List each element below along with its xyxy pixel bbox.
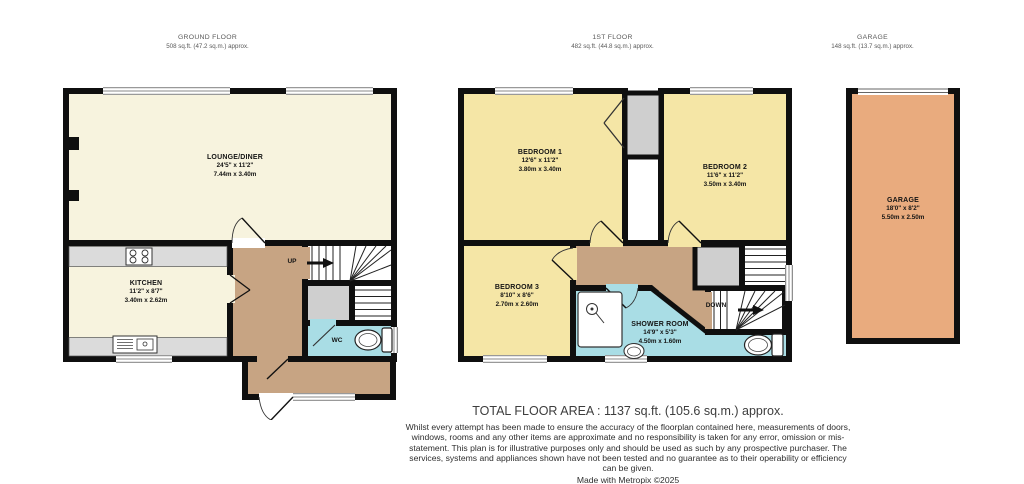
room-name: GARAGE — [844, 196, 962, 205]
floor-title: GROUND FLOOR — [110, 33, 305, 43]
room-name: BEDROOM 3 — [452, 283, 582, 292]
room-size-metric: 3.80m x 3.40m — [467, 166, 613, 175]
room-label-kitchen: KITCHEN 11'2" x 8'7" 3.40m x 2.62m — [76, 279, 216, 305]
room-size-metric: 3.50m x 3.40m — [652, 181, 798, 190]
floorplan-canvas: GROUND FLOOR 508 sq.ft. (47.2 sq.m.) app… — [0, 0, 1024, 484]
floor-area: 508 sq.ft. (47.2 sq.m.) approx. — [110, 43, 305, 52]
room-name: SHOWER ROOM — [585, 320, 735, 329]
ground-floor-drawing — [60, 85, 400, 420]
garage-header: GARAGE 148 sq.ft. (13.7 sq.m.) approx. — [775, 33, 970, 52]
garage-door — [858, 87, 948, 95]
room-size-metric: 7.44m x 3.40m — [155, 171, 315, 180]
landing-cupboard — [695, 245, 742, 288]
garage-plan: GARAGE 18'0" x 8'2" 5.50m x 2.50m — [844, 86, 962, 346]
floor-area: 148 sq.ft. (13.7 sq.m.) approx. — [775, 43, 970, 52]
room-name: BEDROOM 2 — [652, 163, 798, 172]
room-size-metric: 4.50m x 1.60m — [585, 338, 735, 347]
kitchen-sink-icon — [113, 336, 157, 353]
toilet-icon — [745, 334, 784, 356]
total-floor-area: TOTAL FLOOR AREA : 1137 sq.ft. (105.6 sq… — [360, 404, 896, 418]
disclaimer-text: Whilst every attempt has been made to en… — [402, 422, 854, 474]
chimney-nub — [66, 190, 79, 201]
floor-area: 482 sq.ft. (44.8 sq.m.) approx. — [515, 43, 710, 52]
ground-floor-plan: LOUNGE/DINER 24'5" x 11'2" 7.44m x 3.40m… — [60, 85, 400, 420]
stove-icon — [126, 248, 152, 265]
room-size-imperial: 11'2" x 8'7" — [76, 288, 216, 297]
floor-title: 1ST FLOOR — [515, 33, 710, 43]
room-name: KITCHEN — [76, 279, 216, 288]
bedroom-cupboard — [625, 93, 661, 157]
room-label-bedroom1: BEDROOM 1 12'6" x 11'2" 3.80m x 3.40m — [467, 148, 613, 174]
room-size-metric: 5.50m x 2.50m — [844, 214, 962, 223]
room-label-garage: GARAGE 18'0" x 8'2" 5.50m x 2.50m — [844, 196, 962, 222]
room-name: BEDROOM 1 — [467, 148, 613, 157]
room-name: LOUNGE/DINER — [155, 153, 315, 162]
floor-title: GARAGE — [775, 33, 970, 43]
room-label-bedroom2: BEDROOM 2 11'6" x 11'2" 3.50m x 3.40m — [652, 163, 798, 189]
room-size-imperial: 18'0" x 8'2" — [844, 205, 962, 214]
metropix-credit: Made with Metropix ©2025 — [360, 475, 896, 484]
ground-floor-header: GROUND FLOOR 508 sq.ft. (47.2 sq.m.) app… — [110, 33, 305, 52]
room-label-wc: WC — [312, 337, 362, 344]
chimney-nub — [66, 137, 79, 150]
first-floor-plan: BEDROOM 1 12'6" x 11'2" 3.80m x 3.40m BE… — [455, 85, 795, 375]
room-label-bedroom3: BEDROOM 3 8'10" x 8'6" 2.70m x 2.60m — [452, 283, 582, 309]
room-size-imperial: 14'9" x 5'3" — [585, 329, 735, 338]
room-size-metric: 3.40m x 2.62m — [76, 297, 216, 306]
room-size-imperial: 24'5" x 11'2" — [155, 162, 315, 171]
room-size-imperial: 12'6" x 11'2" — [467, 157, 613, 166]
stairs-up-label: UP — [279, 258, 305, 265]
stairs-down-label: DOWN — [698, 302, 734, 309]
first-floor-header: 1ST FLOOR 482 sq.ft. (44.8 sq.m.) approx… — [515, 33, 710, 52]
room-size-imperial: 11'6" x 11'2" — [652, 172, 798, 181]
room-label-lounge: LOUNGE/DINER 24'5" x 11'2" 7.44m x 3.40m — [155, 153, 315, 179]
room-size-metric: 2.70m x 2.60m — [452, 301, 582, 310]
room-size-imperial: 8'10" x 8'6" — [452, 292, 582, 301]
room-label-shower-room: SHOWER ROOM 14'9" x 5'3" 4.50m x 1.60m — [585, 320, 735, 346]
footer: TOTAL FLOOR AREA : 1137 sq.ft. (105.6 sq… — [360, 404, 896, 484]
